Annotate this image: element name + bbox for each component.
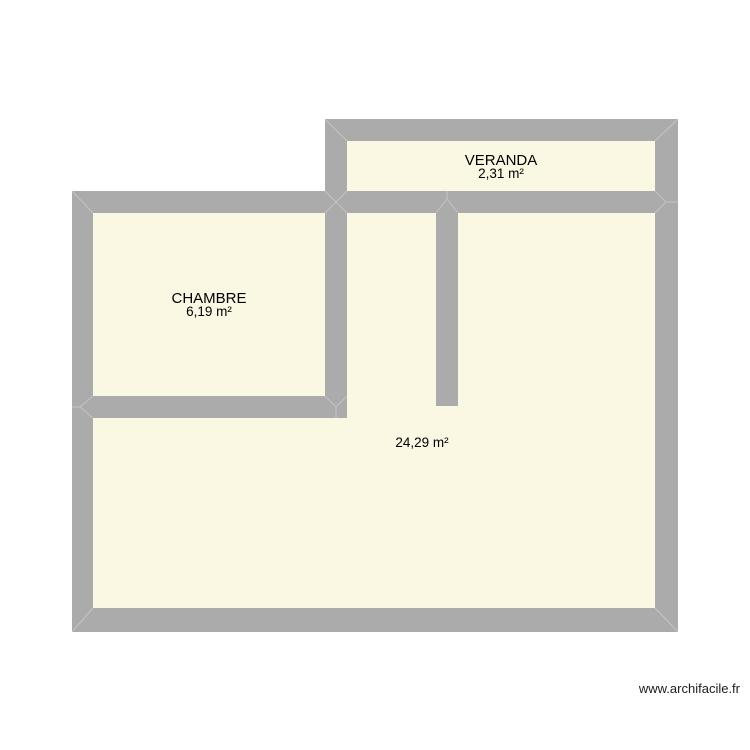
room-area-veranda: 2,31 m²	[478, 166, 524, 181]
floor-plan-canvas: VERANDA 2,31 m² CHAMBRE 6,19 m² 24,29 m²	[0, 0, 750, 750]
watermark-archifacile: www.archifacile.fr	[639, 681, 740, 696]
room-area-chambre: 6,19 m²	[186, 304, 232, 319]
room-area-main: 24,29 m²	[395, 435, 449, 450]
plan-viewport: VERANDA 2,31 m² CHAMBRE 6,19 m² 24,29 m²…	[0, 0, 750, 750]
